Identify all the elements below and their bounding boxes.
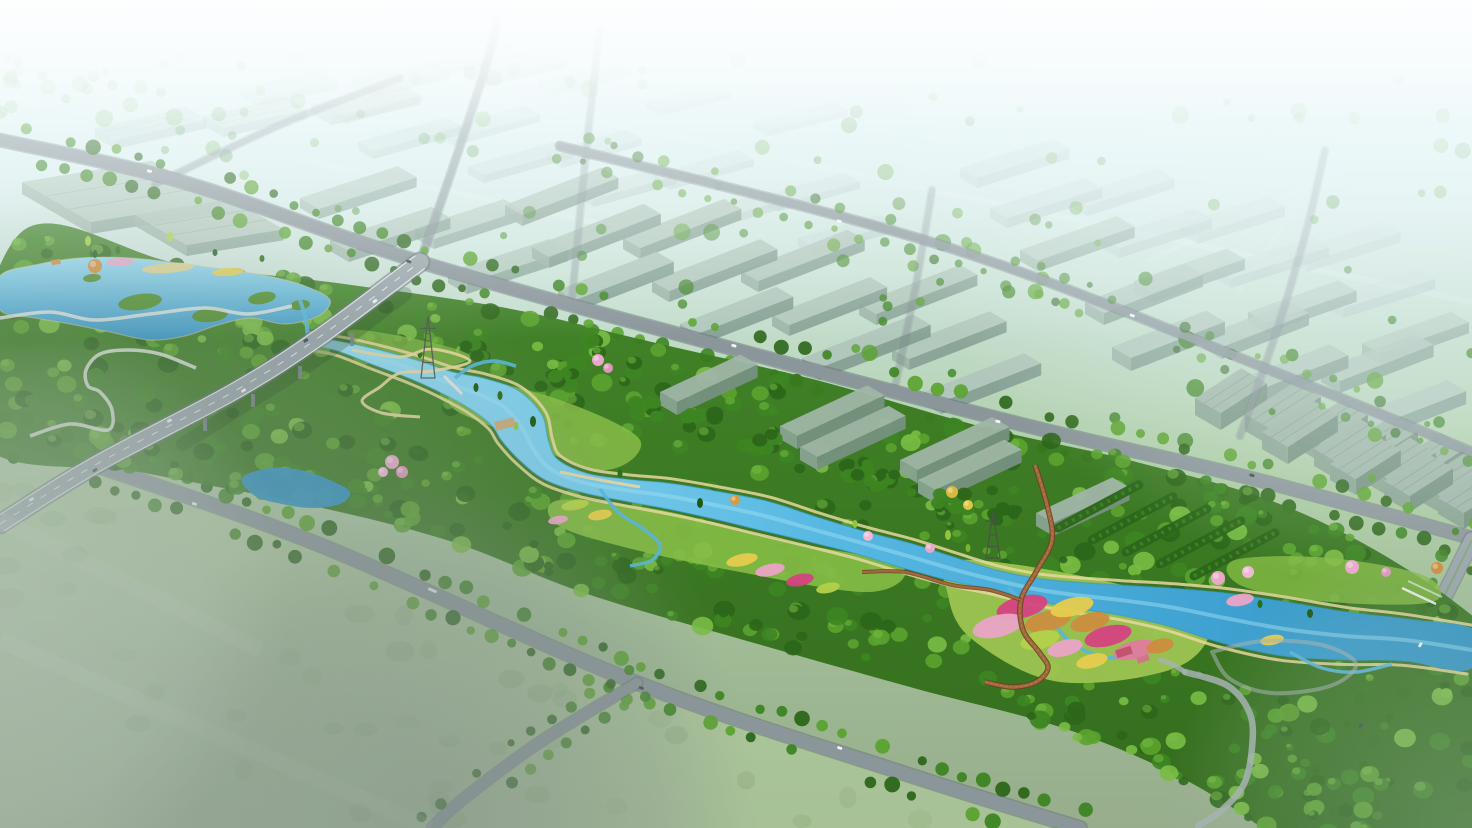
bottom-right-haze [0,0,1472,828]
fog-overlays [0,0,1472,828]
scene [0,0,1472,828]
aerial-masterplan-rendering [0,0,1472,828]
